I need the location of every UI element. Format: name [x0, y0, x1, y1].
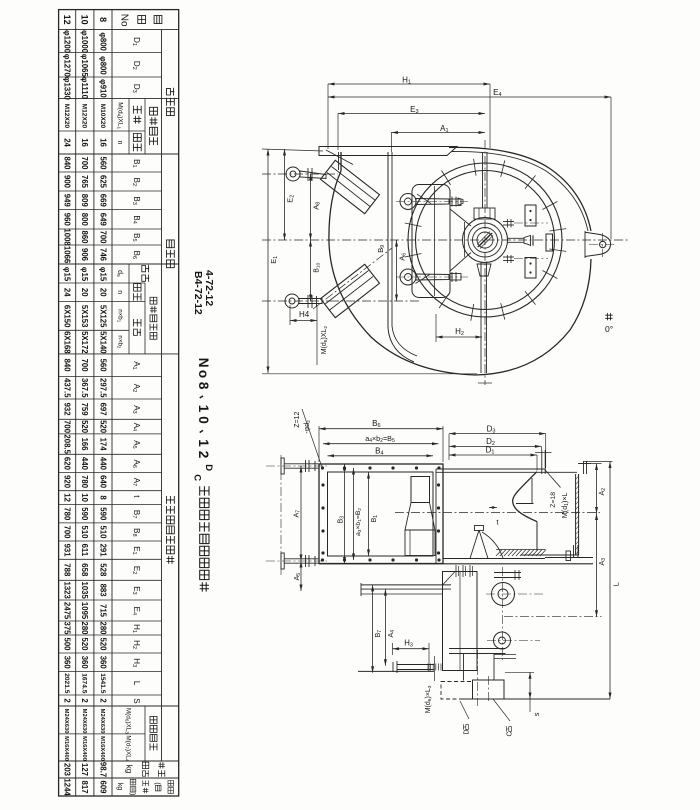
svg-text:φ1200: φ1200: [62, 30, 71, 54]
svg-text:700: 700: [62, 526, 71, 540]
svg-text:M16X400: M16X400: [63, 736, 69, 761]
svg-text:280: 280: [80, 622, 89, 636]
svg-text:2: 2: [62, 698, 71, 703]
svg-text:590: 590: [80, 507, 89, 521]
svg-text:906: 906: [80, 248, 89, 262]
svg-text:700: 700: [98, 231, 107, 245]
svg-text:L: L: [132, 681, 141, 686]
svg-text:M16X400: M16X400: [99, 736, 105, 761]
svg-text:1: 1: [196, 405, 211, 413]
svg-text:1008: 1008: [62, 228, 71, 246]
svg-text:0: 0: [196, 416, 211, 424]
svg-text:932: 932: [62, 403, 71, 417]
svg-text:367.5: 367.5: [80, 378, 89, 398]
svg-text:5X153: 5X153: [80, 305, 89, 328]
svg-text:620: 620: [62, 457, 71, 471]
svg-text:1323: 1323: [62, 582, 71, 600]
svg-text:437.5: 437.5: [62, 378, 71, 398]
svg-text:kg: kg: [125, 765, 134, 774]
svg-text:D: D: [463, 729, 470, 734]
svg-text:840: 840: [62, 359, 71, 373]
svg-text:560: 560: [98, 157, 107, 171]
svg-text:931: 931: [62, 544, 71, 558]
svg-text:2: 2: [196, 451, 211, 459]
svg-text:N: N: [196, 358, 211, 368]
svg-text:φ800: φ800: [98, 56, 107, 75]
svg-text:φ1065: φ1065: [80, 54, 89, 78]
svg-text:860: 860: [80, 231, 89, 245]
svg-text:203: 203: [62, 763, 71, 777]
svg-text:S: S: [132, 698, 141, 703]
svg-text:6X150: 6X150: [62, 305, 71, 328]
svg-text:510: 510: [98, 526, 107, 540]
svg-text:520: 520: [80, 420, 89, 434]
svg-text:800: 800: [80, 213, 89, 227]
svg-text:n: n: [116, 141, 123, 145]
svg-text:C: C: [506, 731, 513, 736]
svg-text:M(d6)XL3: M(d6)XL3: [124, 708, 131, 734]
svg-text:φ15: φ15: [62, 267, 71, 282]
svg-text:949: 949: [62, 194, 71, 208]
svg-text:Z=12: Z=12: [294, 412, 301, 428]
svg-text:360: 360: [62, 656, 71, 670]
svg-text:700: 700: [80, 359, 89, 373]
svg-text:788: 788: [62, 563, 71, 577]
svg-text:M(d4)XL1: M(d4)XL1: [116, 102, 123, 129]
svg-text:φ1270: φ1270: [62, 54, 71, 78]
svg-text:590: 590: [98, 507, 107, 521]
svg-text:500: 500: [62, 638, 71, 652]
svg-text:8: 8: [98, 17, 108, 22]
svg-text:817: 817: [80, 781, 89, 794]
svg-text:): ): [128, 793, 137, 795]
svg-text:360: 360: [80, 656, 89, 670]
svg-text:883: 883: [98, 584, 107, 598]
svg-text:C: C: [191, 474, 202, 481]
svg-text:780: 780: [62, 507, 71, 521]
svg-text:M12X20: M12X20: [63, 104, 70, 129]
svg-text:900: 900: [62, 175, 71, 189]
svg-text:12: 12: [62, 493, 71, 502]
svg-text:765: 765: [80, 175, 89, 189]
svg-text:780: 780: [80, 475, 89, 489]
svg-text:φ15: φ15: [80, 267, 89, 282]
svg-text:520: 520: [98, 638, 107, 652]
svg-text:1244: 1244: [62, 778, 71, 796]
svg-text:1674.5: 1674.5: [81, 673, 88, 694]
svg-text:1035: 1035: [80, 582, 89, 600]
svg-text:297.5: 297.5: [98, 378, 107, 398]
svg-text:658: 658: [80, 563, 89, 577]
svg-text:520: 520: [98, 420, 107, 434]
svg-text:2021.5: 2021.5: [63, 673, 70, 694]
svg-text:M12X20: M12X20: [81, 104, 88, 129]
svg-text:o: o: [196, 370, 211, 378]
svg-text:920: 920: [62, 475, 71, 489]
svg-text:166: 166: [80, 438, 89, 452]
svg-text:1: 1: [196, 439, 211, 447]
svg-text:809: 809: [80, 194, 89, 208]
svg-text:n: n: [116, 290, 123, 294]
svg-text:φ910: φ910: [98, 79, 107, 98]
svg-text:127: 127: [80, 763, 89, 776]
svg-text:1095: 1095: [80, 602, 89, 620]
svg-text:n×b2: n×b2: [116, 335, 123, 349]
svg-text:M(d5)XL2: M(d5)XL2: [321, 326, 329, 355]
svg-text:M24X630: M24X630: [99, 709, 105, 734]
svg-text:φ1110: φ1110: [80, 77, 89, 100]
svg-text:700: 700: [80, 157, 89, 171]
svg-text:Z=18: Z=18: [550, 492, 557, 508]
svg-text:669: 669: [98, 194, 107, 208]
svg-text:D: D: [203, 464, 214, 471]
svg-text:10: 10: [80, 493, 89, 502]
svg-text:s: s: [532, 712, 541, 716]
svg-text:2: 2: [80, 698, 89, 703]
svg-text:291: 291: [98, 544, 107, 558]
svg-text:520: 520: [80, 638, 89, 652]
svg-text:960: 960: [62, 213, 71, 227]
svg-text:440: 440: [98, 457, 107, 471]
svg-text:24: 24: [62, 288, 71, 297]
svg-text:M24X630: M24X630: [81, 709, 87, 734]
svg-text:10: 10: [80, 15, 90, 25]
svg-text:20: 20: [98, 288, 107, 297]
svg-text:715: 715: [98, 604, 107, 618]
svg-text:n×b1: n×b1: [116, 309, 123, 323]
svg-text:M24X630: M24X630: [63, 709, 69, 734]
svg-text:280: 280: [98, 622, 107, 636]
svg-text:M(d6)×L3: M(d6)×L3: [425, 685, 433, 713]
svg-text:746: 746: [98, 248, 107, 262]
svg-text:5X140: 5X140: [98, 331, 107, 354]
svg-text:φ1000: φ1000: [80, 30, 89, 54]
svg-text:1541.5: 1541.5: [99, 673, 106, 694]
svg-text:16: 16: [98, 138, 107, 147]
svg-text:M10X20: M10X20: [99, 104, 106, 129]
svg-text:697: 697: [98, 403, 107, 416]
svg-text:360: 360: [98, 656, 107, 670]
svg-text:B4-72-12: B4-72-12: [192, 271, 204, 315]
svg-text:5X172: 5X172: [80, 331, 89, 354]
svg-text:625: 625: [98, 175, 107, 189]
svg-text:20: 20: [80, 288, 89, 297]
svg-text:16: 16: [80, 138, 89, 147]
svg-text:640: 640: [98, 475, 107, 489]
svg-text:12: 12: [62, 15, 72, 25]
svg-text:8: 8: [98, 495, 107, 500]
svg-text:528: 528: [98, 563, 107, 577]
svg-text:M16X400: M16X400: [81, 736, 87, 761]
svg-text:840: 840: [62, 157, 71, 171]
svg-text:560: 560: [98, 359, 107, 373]
svg-text:609: 609: [98, 781, 107, 795]
svg-text:6X168: 6X168: [62, 331, 71, 354]
svg-text:2: 2: [98, 698, 107, 703]
svg-text:φ15: φ15: [98, 267, 107, 282]
svg-text:759: 759: [80, 403, 89, 417]
svg-text:0°: 0°: [605, 324, 613, 334]
svg-text:kg: kg: [116, 783, 125, 791]
svg-text:8: 8: [196, 382, 211, 390]
svg-text:H4: H4: [299, 310, 310, 319]
svg-text:φ1330: φ1330: [62, 77, 71, 101]
svg-text:24: 24: [62, 138, 71, 147]
svg-text:L: L: [612, 582, 621, 586]
svg-text:1066: 1066: [62, 246, 71, 264]
svg-text:M(d7)XL4: M(d7)XL4: [124, 735, 131, 761]
svg-text:2475: 2475: [62, 602, 71, 620]
svg-text:700: 700: [62, 420, 71, 434]
svg-text:No: No: [119, 14, 130, 27]
svg-text:5X125: 5X125: [98, 305, 107, 328]
svg-text:φ800: φ800: [98, 32, 107, 51]
svg-text:174: 174: [98, 438, 107, 452]
svg-text:208.5: 208.5: [62, 434, 71, 454]
svg-text:649: 649: [98, 213, 107, 227]
svg-text:440: 440: [80, 457, 89, 471]
svg-text:375: 375: [62, 622, 71, 636]
svg-text:510: 510: [80, 526, 89, 540]
svg-text:98.7: 98.7: [98, 762, 107, 777]
svg-text:611: 611: [80, 544, 89, 557]
